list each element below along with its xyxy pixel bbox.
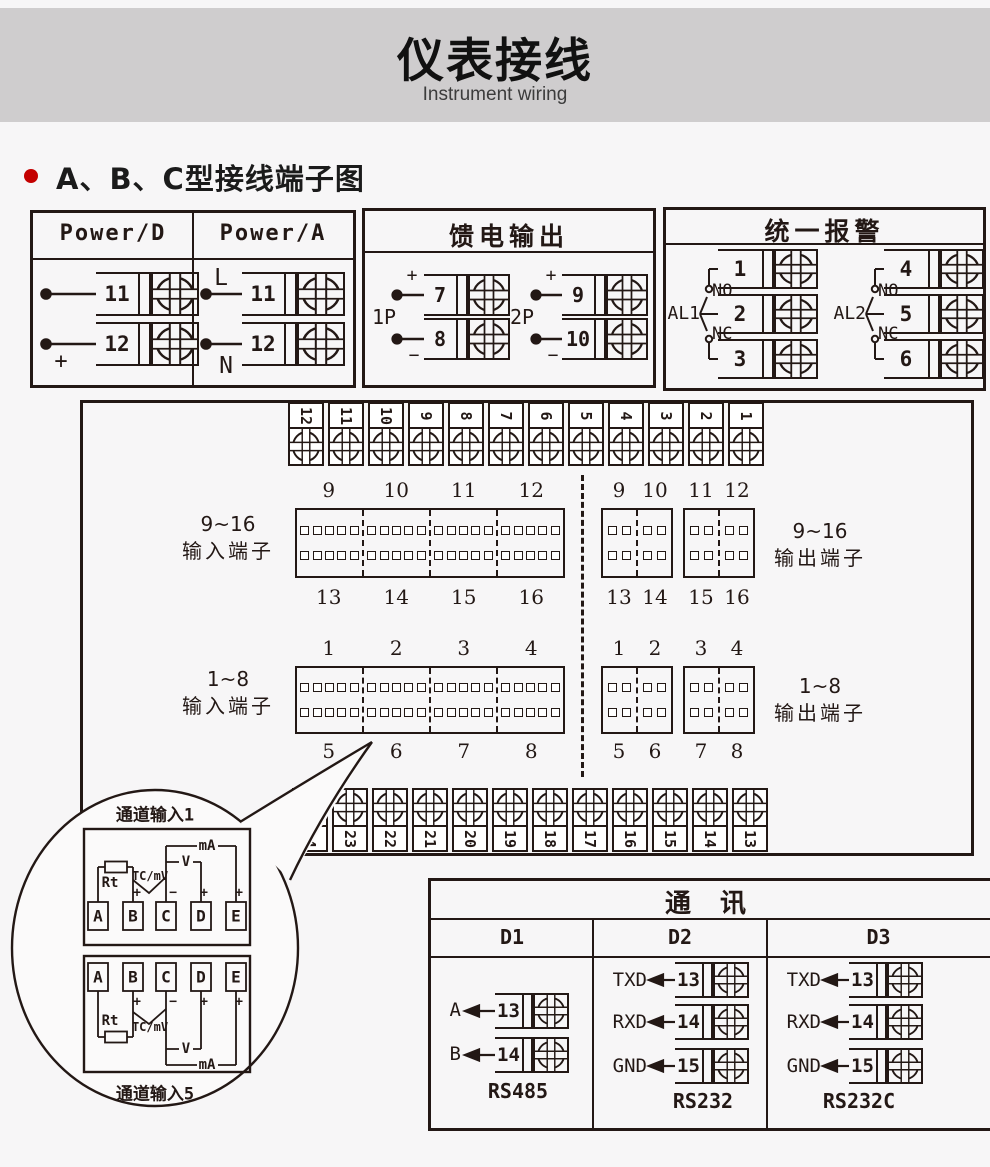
output-916-bottom-numbers-a: 1314: [601, 585, 673, 611]
screw-terminal-icon: [734, 790, 766, 825]
comm-d2-terminal-15: 15: [675, 1048, 749, 1084]
strip-terminal: 12: [288, 402, 324, 466]
alarm-terminal-2: 2: [718, 294, 818, 334]
screw-terminal-icon: [887, 1048, 923, 1084]
screw-terminal-icon: [534, 790, 566, 825]
strip-terminal: 16: [612, 788, 648, 852]
screw-terminal-icon: [290, 429, 322, 464]
terminal-number: 3: [650, 404, 682, 429]
power-terminal-box: Power/D Power/A − + L N 11 12 11 12: [30, 210, 356, 388]
terminal-separator: [762, 249, 774, 289]
pin-number: 8: [719, 739, 755, 765]
pin-number: 9: [601, 478, 637, 504]
comm-col-d3-header: D3: [767, 925, 990, 949]
connector-section: [362, 668, 429, 732]
connector-section: [685, 510, 718, 576]
pin-number: 1: [295, 636, 363, 662]
feed-1p-plus: +: [403, 265, 421, 286]
screw-terminal-icon: [450, 429, 482, 464]
strip-terminal: 9: [408, 402, 444, 466]
terminal-number: 8: [450, 404, 482, 429]
terminal-separator: [522, 1037, 533, 1073]
terminal-separator: [138, 322, 151, 366]
main-terminal-board: 12 11 10 9 8 7 6 5 4 3 2 1 9~16 输入端子 910…: [80, 400, 974, 856]
label-text: 输出端子: [740, 545, 900, 572]
screw-terminal-icon: [774, 339, 818, 379]
terminal-number: 11: [242, 272, 284, 316]
terminal-number: 5: [570, 404, 602, 429]
instrument-wiring-page: { "page": {"background": "#f7f6f7", "lin…: [0, 0, 990, 1167]
connector-section: [297, 510, 362, 576]
screw-terminal-icon: [533, 993, 569, 1029]
screw-terminal-icon: [606, 318, 648, 360]
terminal-number: 11: [330, 404, 362, 429]
alarm-al2-label: AL2: [830, 303, 866, 324]
alarm-title: 统一报警: [666, 212, 983, 248]
terminal-number: 14: [495, 1037, 522, 1073]
terminal-number: 22: [374, 825, 406, 850]
strip-terminal: 17: [572, 788, 608, 852]
output-18-label: 1~8 输出端子: [740, 673, 900, 727]
terminal-separator: [702, 962, 713, 998]
pin-number: 3: [683, 636, 719, 662]
power-terminal-12d: 12: [96, 322, 199, 366]
screw-terminal-icon: [694, 790, 726, 825]
pin-number: 13: [295, 585, 363, 611]
terminal-number: 7: [424, 274, 456, 316]
terminal-number: 24: [294, 825, 326, 850]
terminal-separator: [928, 294, 940, 334]
comm-d2-terminal-14: 14: [675, 1004, 749, 1040]
pin-number: 12: [498, 478, 566, 504]
power-terminal-11d: 11: [96, 272, 199, 316]
terminal-number-text: 15: [661, 829, 679, 847]
alarm-terminal-6: 6: [884, 339, 984, 379]
connector-section: [496, 510, 563, 576]
terminal-number-text: 16: [621, 829, 639, 847]
strip-terminal: 20: [452, 788, 488, 852]
pin-number: 6: [637, 739, 673, 765]
connector-section: [636, 668, 671, 732]
screw-terminal-icon: [330, 429, 362, 464]
label-range: 9~16: [148, 511, 308, 538]
screw-terminal-icon: [494, 790, 526, 825]
pin-number: 16: [719, 585, 755, 611]
terminal-number: 6: [884, 339, 928, 379]
strip-terminal: 22: [372, 788, 408, 852]
feed-group-1p-label: 1P: [367, 305, 401, 329]
screw-terminal-icon: [606, 274, 648, 316]
pin-number: 16: [498, 585, 566, 611]
screw-terminal-icon: [690, 429, 722, 464]
terminal-separator: [876, 1004, 887, 1040]
screw-terminal-icon: [468, 318, 510, 360]
strip-terminal: 13: [732, 788, 768, 852]
feed-terminal-9: 9: [562, 274, 648, 316]
input-18-bottom-numbers: 5678: [295, 739, 565, 765]
terminal-number: 12: [96, 322, 138, 366]
strip-terminal: 2: [688, 402, 724, 466]
comm-d3-terminal-14: 14: [849, 1004, 923, 1040]
comm-d2-signal-rxd: RXD: [587, 1011, 647, 1033]
screw-terminal-icon: [610, 429, 642, 464]
terminal-number-text: 10: [377, 406, 395, 424]
terminal-number: 1: [730, 404, 762, 429]
terminal-separator: [284, 322, 297, 366]
output-916-top-numbers-a: 910: [601, 478, 673, 504]
terminal-number-text: 19: [501, 829, 519, 847]
terminal-number: 12: [242, 322, 284, 366]
feed-2p-plus: +: [542, 265, 560, 286]
terminal-number: 7: [490, 404, 522, 429]
screw-terminal-icon: [650, 429, 682, 464]
connector-section: [297, 668, 362, 732]
strip-terminal: 24: [292, 788, 328, 852]
terminal-number: 4: [610, 404, 642, 429]
terminal-number: 14: [675, 1004, 702, 1040]
terminal-separator: [284, 272, 297, 316]
terminal-separator: [522, 993, 533, 1029]
comm-col-d1-header: D1: [431, 925, 593, 949]
output-916-connector-a: [601, 508, 673, 578]
comm-d1-terminal-13: 13: [495, 993, 569, 1029]
terminal-number: 13: [734, 825, 766, 850]
output-18-connector-a: [601, 666, 673, 734]
pin-number: 8: [498, 739, 566, 765]
terminal-number-text: 7: [497, 411, 515, 420]
terminal-number: 16: [614, 825, 646, 850]
screw-terminal-icon: [774, 294, 818, 334]
terminal-number-text: 11: [337, 406, 355, 424]
pin-number: 6: [363, 739, 431, 765]
terminal-number: 9: [562, 274, 594, 316]
terminal-separator: [928, 249, 940, 289]
strip-terminal: 21: [412, 788, 448, 852]
feed-terminal-10: 10: [562, 318, 648, 360]
input-916-bottom-numbers: 13141516: [295, 585, 565, 611]
terminal-number: 13: [495, 993, 522, 1029]
input-18-top-numbers: 1234: [295, 636, 565, 662]
screw-terminal-icon: [410, 429, 442, 464]
feed-output-title: 馈电输出: [365, 217, 653, 253]
terminal-separator: [456, 318, 468, 360]
strip-terminal: 8: [448, 402, 484, 466]
label-text: 输入端子: [148, 538, 308, 565]
terminal-number: 15: [654, 825, 686, 850]
feed-1p-minus: −: [405, 345, 423, 366]
pin-number: 5: [601, 739, 637, 765]
output-18-bottom-numbers-b: 78: [683, 739, 755, 765]
feed-terminal-8: 8: [424, 318, 510, 360]
terminal-number-text: 21: [421, 829, 439, 847]
terminal-number: 15: [849, 1048, 876, 1084]
pin-number: 10: [637, 478, 673, 504]
comm-d3-terminal-15: 15: [849, 1048, 923, 1084]
screw-terminal-icon: [940, 294, 984, 334]
terminal-number: 1: [718, 249, 762, 289]
label-range: 1~8: [148, 666, 308, 693]
pin-number: 2: [637, 636, 673, 662]
bullet-icon: [24, 169, 38, 183]
screw-terminal-icon: [713, 1048, 749, 1084]
screw-terminal-icon: [454, 790, 486, 825]
strip-terminal: 10: [368, 402, 404, 466]
screw-terminal-icon: [774, 249, 818, 289]
pin-number: 9: [295, 478, 363, 504]
strip-terminal: 6: [528, 402, 564, 466]
comm-col-d2-header: D2: [593, 925, 767, 949]
power-a-title: Power/A: [193, 221, 353, 246]
power-d-plus-label: +: [51, 349, 71, 374]
strip-terminal: 19: [492, 788, 528, 852]
terminal-number-text: 12: [297, 406, 315, 424]
output-18-bottom-numbers-a: 56: [601, 739, 673, 765]
page-subtitle: Instrument wiring: [0, 84, 990, 106]
comm-d1-signal-a: A: [435, 999, 461, 1021]
io-separator-line: [581, 475, 584, 777]
output-916-top-numbers-b: 1112: [683, 478, 755, 504]
power-a-l-label: L: [211, 265, 231, 291]
pin-number: 2: [363, 636, 431, 662]
comm-d1-terminal-14: 14: [495, 1037, 569, 1073]
screw-terminal-icon: [374, 790, 406, 825]
screw-terminal-icon: [887, 1004, 923, 1040]
terminal-number: 21: [414, 825, 446, 850]
screw-terminal-icon: [151, 322, 199, 366]
connector-section: [603, 510, 636, 576]
terminal-number: 2: [690, 404, 722, 429]
alarm-terminal-4: 4: [884, 249, 984, 289]
strip-terminal: 4: [608, 402, 644, 466]
terminal-number: 14: [849, 1004, 876, 1040]
terminal-number-text: 13: [741, 829, 759, 847]
comm-d2-signal-txd: TXD: [587, 969, 647, 991]
comm-d3-signal-txd: TXD: [761, 969, 821, 991]
terminal-separator: [702, 1048, 713, 1084]
terminal-number: 19: [494, 825, 526, 850]
screw-terminal-icon: [530, 429, 562, 464]
connector-section: [603, 668, 636, 732]
screw-terminal-icon: [151, 272, 199, 316]
screw-terminal-icon: [654, 790, 686, 825]
strip-terminal: 11: [328, 402, 364, 466]
strip-terminal: 7: [488, 402, 524, 466]
screw-terminal-icon: [730, 429, 762, 464]
screw-terminal-icon: [614, 790, 646, 825]
comm-d3-standard: RS232C: [799, 1089, 919, 1113]
connector-section: [429, 510, 496, 576]
terminal-number: 12: [290, 404, 322, 429]
terminal-separator: [138, 272, 151, 316]
strip-terminal: 3: [648, 402, 684, 466]
section-heading: A、B、C型接线端子图: [56, 156, 365, 198]
connector-section: [429, 668, 496, 732]
strip-terminal: 14: [692, 788, 728, 852]
comm-d1-signal-b: B: [435, 1043, 461, 1065]
terminal-number: 3: [718, 339, 762, 379]
comm-d1-standard: RS485: [458, 1079, 578, 1103]
terminal-number: 17: [574, 825, 606, 850]
comm-d2-signal-gnd: GND: [587, 1055, 647, 1077]
screw-terminal-icon: [570, 429, 602, 464]
terminal-number-text: 5: [577, 411, 595, 420]
strip-terminal: 15: [652, 788, 688, 852]
feed-2p-minus: −: [544, 345, 562, 366]
terminal-number-text: 3: [657, 411, 675, 420]
pin-number: 13: [601, 585, 637, 611]
connector-section: [636, 510, 671, 576]
strip-terminal: 23: [332, 788, 368, 852]
pin-number: 11: [430, 478, 498, 504]
screw-terminal-icon: [713, 962, 749, 998]
alarm-al1-label: AL1: [666, 303, 700, 324]
screw-terminal-icon: [334, 790, 366, 825]
screw-terminal-icon: [297, 272, 345, 316]
input-916-top-numbers: 9101112: [295, 478, 565, 504]
terminal-number-text: 6: [537, 411, 555, 420]
terminal-number: 10: [370, 404, 402, 429]
power-d-title: Power/D: [33, 221, 193, 246]
terminal-separator: [702, 1004, 713, 1040]
terminal-number-text: 8: [457, 411, 475, 420]
terminal-number: 11: [96, 272, 138, 316]
strip-terminal: 5: [568, 402, 604, 466]
pin-number: 4: [719, 636, 755, 662]
terminal-number-text: 20: [461, 829, 479, 847]
terminal-number: 6: [530, 404, 562, 429]
terminal-separator: [876, 1048, 887, 1084]
terminal-separator: [762, 339, 774, 379]
terminal-separator: [594, 318, 606, 360]
label-text: 输出端子: [740, 700, 900, 727]
terminal-number: 9: [410, 404, 442, 429]
bottom-terminal-strip: 24 23 22 21 20 19 18 17 16 15 14 13: [292, 788, 768, 852]
input-18-connector: [295, 666, 565, 734]
feed-output-box: 馈电输出 1P + − 2P + − 7 8 9 10: [362, 208, 656, 388]
output-916-label: 9~16 输出端子: [740, 518, 900, 572]
screw-terminal-icon: [297, 322, 345, 366]
terminal-separator: [876, 962, 887, 998]
connector-section: [362, 510, 429, 576]
screw-terminal-icon: [574, 790, 606, 825]
terminal-number: 5: [884, 294, 928, 334]
output-916-bottom-numbers-b: 1516: [683, 585, 755, 611]
pin-number: 11: [683, 478, 719, 504]
power-d-minus-label: −: [71, 247, 91, 272]
feed-terminal-7: 7: [424, 274, 510, 316]
power-a-n-label: N: [216, 353, 236, 379]
screw-terminal-icon: [414, 790, 446, 825]
input-916-connector: [295, 508, 565, 578]
terminal-separator: [928, 339, 940, 379]
label-range: 9~16: [740, 518, 900, 545]
pin-number: 5: [295, 739, 363, 765]
pin-number: 4: [498, 636, 566, 662]
terminal-number: 2: [718, 294, 762, 334]
pin-number: 7: [430, 739, 498, 765]
terminal-number-text: 17: [581, 829, 599, 847]
comm-d3-signal-rxd: RXD: [761, 1011, 821, 1033]
alarm-terminal-3: 3: [718, 339, 818, 379]
power-terminal-12a: 12: [242, 322, 345, 366]
alarm-terminal-5: 5: [884, 294, 984, 334]
label-text: 输入端子: [148, 693, 308, 720]
screw-terminal-icon: [370, 429, 402, 464]
output-18-top-numbers-b: 34: [683, 636, 755, 662]
terminal-number-text: 14: [701, 829, 719, 847]
power-terminal-11a: 11: [242, 272, 345, 316]
input-18-label: 1~8 输入端子: [148, 666, 308, 720]
terminal-separator: [762, 294, 774, 334]
terminal-number-text: 24: [301, 829, 319, 847]
output-18-top-numbers-a: 12: [601, 636, 673, 662]
terminal-number-text: 2: [697, 411, 715, 420]
page-title: 仪表接线: [0, 22, 990, 91]
top-terminal-strip: 12 11 10 9 8 7 6 5 4 3 2 1: [288, 402, 764, 466]
terminal-number: 4: [884, 249, 928, 289]
terminal-number-text: 18: [541, 829, 559, 847]
terminal-number: 13: [849, 962, 876, 998]
terminal-number: 10: [562, 318, 594, 360]
pin-number: 15: [430, 585, 498, 611]
pin-number: 1: [601, 636, 637, 662]
terminal-number-text: 22: [381, 829, 399, 847]
pin-number: 12: [719, 478, 755, 504]
alarm-box: 统一报警 AL1 NO NC AL2 NO NC 1 2 3 4 5 6: [663, 207, 986, 391]
comm-d3-terminal-13: 13: [849, 962, 923, 998]
terminal-number-text: 9: [417, 411, 435, 420]
terminal-number: 8: [424, 318, 456, 360]
terminal-number: 18: [534, 825, 566, 850]
comm-title: 通 讯: [431, 883, 990, 920]
pin-number: 15: [683, 585, 719, 611]
pin-number: 7: [683, 739, 719, 765]
communication-box: 通 讯 D1 D2 D3 A B 13 14 RS485 TXD RXD GND…: [428, 878, 990, 1131]
terminal-number-text: 4: [617, 411, 635, 420]
screw-terminal-icon: [940, 249, 984, 289]
terminal-number-text: 23: [341, 829, 359, 847]
pin-number: 3: [430, 636, 498, 662]
screw-terminal-icon: [887, 962, 923, 998]
terminal-separator: [456, 274, 468, 316]
comm-header-divider: [431, 956, 990, 958]
terminal-number: 13: [675, 962, 702, 998]
screw-terminal-icon: [713, 1004, 749, 1040]
screw-terminal-icon: [490, 429, 522, 464]
terminal-number: 15: [675, 1048, 702, 1084]
pin-number: 14: [637, 585, 673, 611]
feed-group-2p-label: 2P: [505, 305, 539, 329]
terminal-number: 14: [694, 825, 726, 850]
screw-terminal-icon: [294, 790, 326, 825]
terminal-separator: [594, 274, 606, 316]
comm-d2-standard: RS232: [643, 1089, 763, 1113]
input-916-label: 9~16 输入端子: [148, 511, 308, 565]
strip-terminal: 18: [532, 788, 568, 852]
screw-terminal-icon: [468, 274, 510, 316]
pin-number: 10: [363, 478, 431, 504]
alarm-terminal-1: 1: [718, 249, 818, 289]
pin-number: 14: [363, 585, 431, 611]
terminal-number-text: 1: [737, 411, 755, 420]
label-range: 1~8: [740, 673, 900, 700]
connector-section: [685, 668, 718, 732]
screw-terminal-icon: [533, 1037, 569, 1073]
terminal-number: 23: [334, 825, 366, 850]
screw-terminal-icon: [940, 339, 984, 379]
comm-d3-signal-gnd: GND: [761, 1055, 821, 1077]
connector-section: [496, 668, 563, 732]
